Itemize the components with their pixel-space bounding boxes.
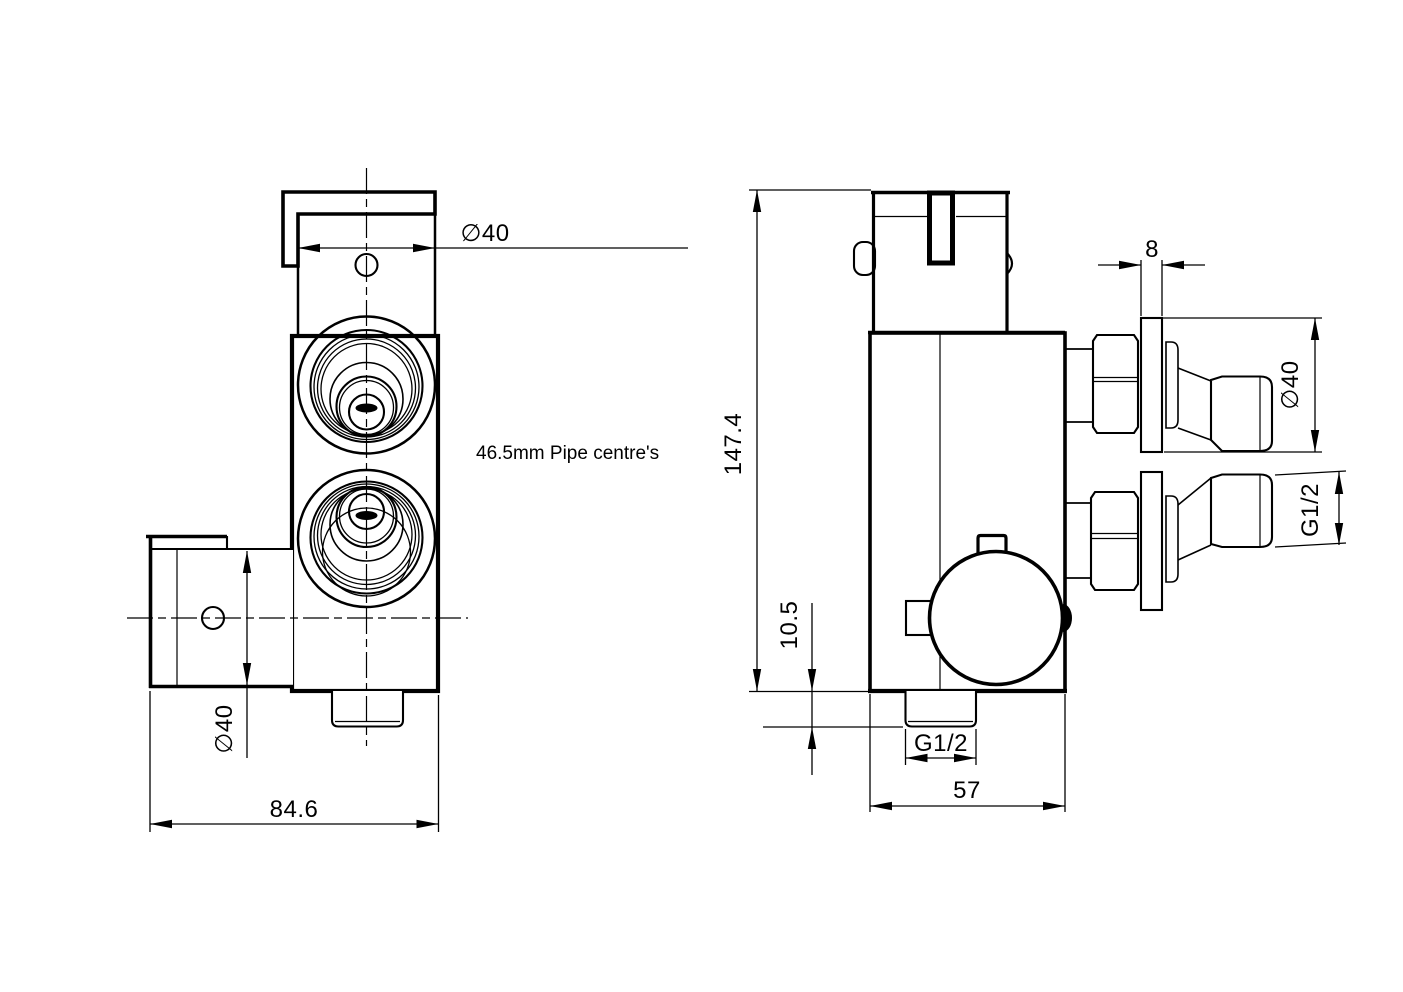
technical-drawing-page: ∅40 ∅40 84.6 46.5mm Pipe centre's	[0, 0, 1403, 992]
body-depth-label: 57	[953, 777, 981, 804]
temp-knob-left-tab	[906, 601, 931, 635]
dim-flange-thickness: 8	[1098, 236, 1205, 316]
pipe-centres-note: 46.5mm Pipe centre's	[476, 443, 659, 464]
inlet-thread-label: G1/2	[1297, 483, 1324, 537]
technical-drawing: ∅40 ∅40 84.6 46.5mm Pipe centre's	[0, 0, 1403, 992]
front-side-diameter-label: ∅40	[211, 704, 238, 753]
temp-knob-right-bump	[1063, 604, 1072, 632]
front-top-diameter-label: ∅40	[460, 220, 509, 247]
dim-outlet-thread: G1/2	[906, 729, 977, 765]
knob-left-bump	[854, 242, 875, 275]
front-width-label: 84.6	[270, 796, 319, 823]
upper-pipe-end	[1211, 377, 1272, 452]
front-left-fitting	[146, 535, 293, 688]
inlet-flange-diameter-label: ∅40	[1277, 360, 1304, 409]
front-view: ∅40 ∅40 84.6 46.5mm Pipe centre's	[127, 168, 688, 832]
upper-collar	[1166, 342, 1178, 428]
lower-flange	[1141, 472, 1162, 610]
outlet-thread-label: G1/2	[914, 730, 968, 757]
lower-hex-nut	[1091, 492, 1138, 590]
flange-thickness-label: 8	[1145, 236, 1159, 263]
side-top-knob	[854, 192, 1065, 333]
temp-knob-circle	[930, 552, 1063, 685]
dim-front-top-diameter: ∅40	[298, 220, 688, 252]
side-view: 147.4 10.5 G1/2 57	[720, 190, 1346, 812]
dim-inlet-thread: G1/2	[1275, 471, 1346, 547]
knob-slot	[930, 193, 953, 263]
side-upper-fitting	[1065, 318, 1272, 452]
upper-flange	[1141, 318, 1162, 452]
lower-collar	[1166, 496, 1178, 582]
lower-pipe-end	[1211, 475, 1272, 548]
side-lower-fitting	[1065, 472, 1272, 610]
side-height-label: 147.4	[720, 413, 747, 476]
upper-hex-nut	[1093, 335, 1138, 433]
outlet-protrusion-label: 10.5	[776, 601, 803, 650]
front-top-cap	[283, 192, 435, 266]
